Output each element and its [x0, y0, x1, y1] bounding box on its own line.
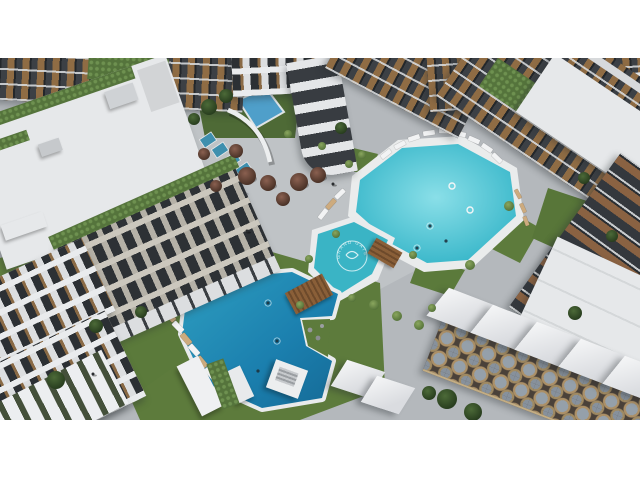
- letterbox-bottom: [0, 420, 640, 480]
- vent-grille: [275, 367, 299, 387]
- aerial-render-image: GRAND GATE: [0, 0, 640, 480]
- aerial-photo: GRAND GATE: [0, 58, 640, 420]
- roof-access-box: [38, 138, 63, 157]
- letterbox-top: [0, 0, 640, 58]
- roof-garden-strip: [0, 130, 30, 161]
